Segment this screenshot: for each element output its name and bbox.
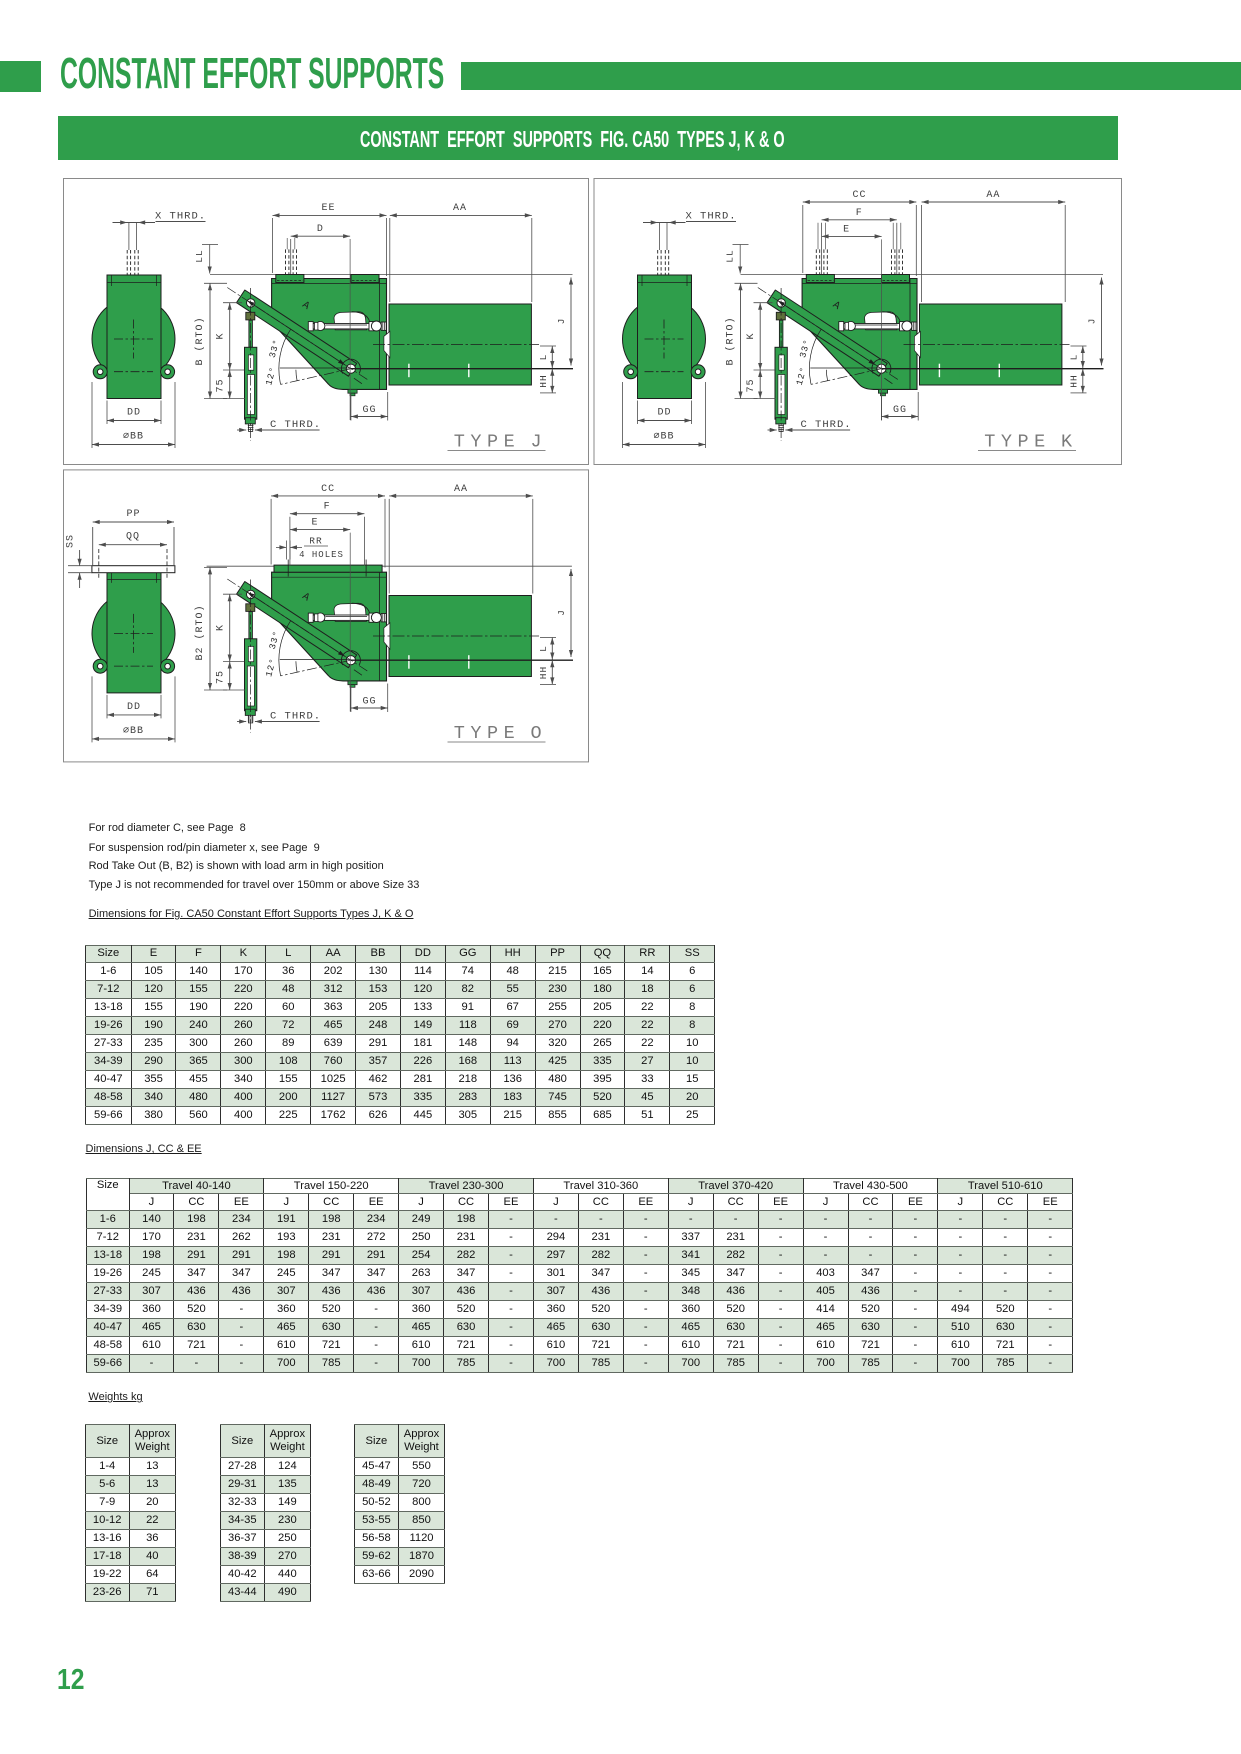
svg-text:AA: AA <box>986 190 1000 201</box>
svg-text:K: K <box>746 332 757 339</box>
svg-text:QQ: QQ <box>126 532 140 543</box>
svg-text:L: L <box>538 645 549 652</box>
svg-text:∅BB: ∅BB <box>123 726 144 737</box>
svg-text:C THRD.: C THRD. <box>270 711 321 723</box>
svg-text:AA: AA <box>453 203 467 214</box>
svg-text:B (RTO): B (RTO) <box>725 316 737 365</box>
svg-text:75: 75 <box>216 670 227 684</box>
svg-text:SS: SS <box>66 534 77 548</box>
svg-text:TYPE: TYPE <box>454 432 520 453</box>
svg-text:TYPE: TYPE <box>454 723 520 744</box>
svg-text:F: F <box>856 208 863 219</box>
svg-text:∅BB: ∅BB <box>123 432 144 443</box>
svg-text:LL: LL <box>194 249 205 262</box>
svg-text:HH: HH <box>538 666 549 679</box>
svg-text:EE: EE <box>321 203 335 214</box>
svg-text:E: E <box>843 224 850 235</box>
svg-text:F: F <box>324 502 331 513</box>
svg-text:LL: LL <box>725 249 736 262</box>
svg-text:K: K <box>216 624 227 631</box>
svg-text:K: K <box>1061 432 1073 453</box>
svg-text:12°: 12° <box>795 365 810 386</box>
svg-text:DD: DD <box>657 408 671 419</box>
svg-text:J: J <box>1087 318 1098 325</box>
svg-text:TYPE: TYPE <box>984 432 1050 453</box>
svg-text:B (RTO): B (RTO) <box>194 316 206 365</box>
svg-text:L: L <box>1069 354 1080 361</box>
svg-text:GG: GG <box>362 405 376 416</box>
svg-text:RR: RR <box>309 536 322 547</box>
svg-text:12°: 12° <box>264 657 279 678</box>
svg-text:PP: PP <box>126 509 140 520</box>
svg-text:75: 75 <box>746 378 757 392</box>
svg-text:J: J <box>556 609 567 616</box>
svg-text:33°: 33° <box>798 338 813 359</box>
svg-text:C THRD.: C THRD. <box>800 419 851 431</box>
svg-text:DD: DD <box>127 408 141 419</box>
svg-text:L: L <box>538 354 549 361</box>
svg-text:HH: HH <box>538 374 549 387</box>
svg-text:J: J <box>530 432 541 453</box>
svg-text:CC: CC <box>321 484 335 495</box>
svg-text:D: D <box>317 224 324 235</box>
svg-text:12°: 12° <box>264 365 279 386</box>
svg-text:C THRD.: C THRD. <box>270 419 321 431</box>
svg-text:DD: DD <box>127 702 141 713</box>
svg-text:33°: 33° <box>268 338 283 359</box>
svg-text:33°: 33° <box>268 629 283 650</box>
svg-text:O: O <box>530 723 541 744</box>
svg-text:CC: CC <box>852 190 866 201</box>
svg-text:AA: AA <box>454 484 468 495</box>
svg-text:X THRD.: X THRD. <box>685 211 736 223</box>
svg-text:X THRD.: X THRD. <box>155 211 206 223</box>
svg-text:75: 75 <box>216 378 227 392</box>
svg-text:4 HOLES: 4 HOLES <box>299 550 344 560</box>
svg-text:E: E <box>311 518 318 529</box>
svg-text:HH: HH <box>1069 374 1080 387</box>
svg-text:GG: GG <box>893 405 907 416</box>
svg-text:K: K <box>216 332 227 339</box>
svg-text:B2 (RTO): B2 (RTO) <box>194 604 206 660</box>
svg-text:∅BB: ∅BB <box>653 432 674 443</box>
svg-text:J: J <box>556 318 567 325</box>
svg-text:GG: GG <box>362 697 376 708</box>
